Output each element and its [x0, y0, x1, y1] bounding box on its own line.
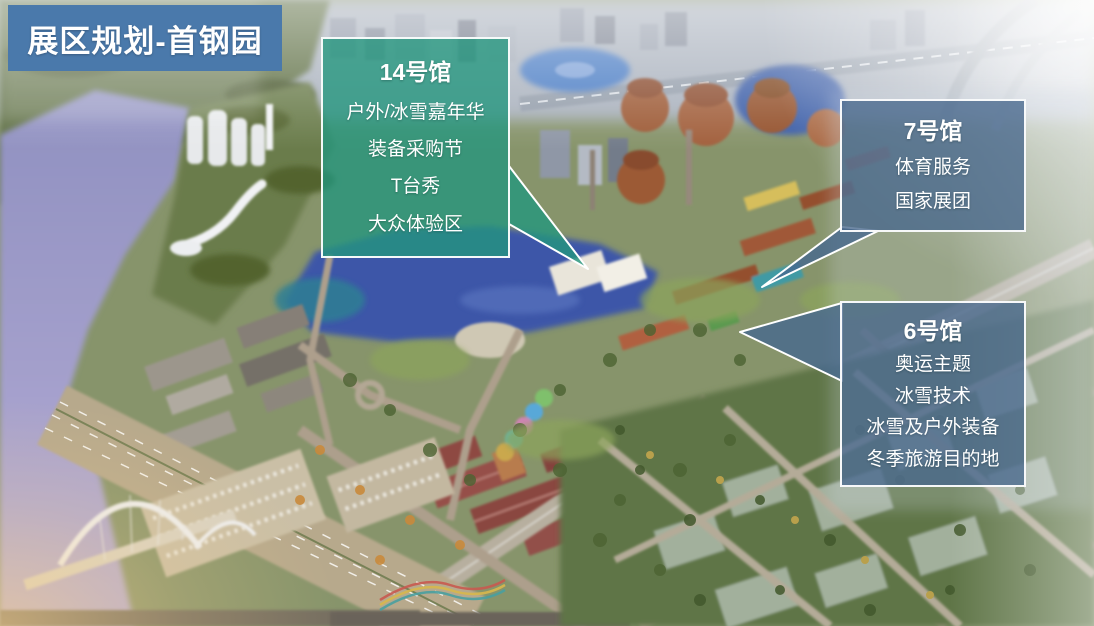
page-title: 展区规划-首钢园	[8, 5, 282, 71]
slide: 展区规划-首钢园 14号馆 户外/冰雪嘉年华 装备采购节 T台秀 大众体验区 7…	[0, 0, 1094, 626]
callout-hall-7-title: 7号馆	[904, 120, 963, 143]
callout-hall-6-item: 冰雪技术	[895, 387, 971, 406]
callout-hall-14-item: T台秀	[391, 177, 441, 196]
callout-hall-7-item: 体育服务	[895, 158, 971, 177]
callout-hall-14-item: 装备采购节	[368, 140, 463, 159]
callout-hall-14-title: 14号馆	[380, 61, 452, 84]
callout-hall-6-item: 冬季旅游目的地	[866, 450, 999, 469]
callout-hall-7: 7号馆 体育服务 国家展团	[840, 99, 1026, 232]
callout-hall-6-item: 奥运主题	[895, 355, 971, 374]
page-title-text: 展区规划-首钢园	[27, 16, 262, 61]
pointer-hall-14	[509, 166, 588, 269]
callout-hall-14-item: 户外/冰雪嘉年华	[346, 103, 484, 122]
callout-hall-14-item: 大众体验区	[368, 215, 463, 234]
callout-hall-6: 6号馆 奥运主题 冰雪技术 冰雪及户外装备 冬季旅游目的地	[840, 301, 1026, 487]
callout-hall-6-title: 6号馆	[904, 320, 963, 343]
pointer-hall-6	[740, 303, 842, 381]
callout-hall-7-item: 国家展团	[895, 192, 971, 211]
pointer-hall-7	[762, 227, 878, 287]
callout-hall-6-item: 冰雪及户外装备	[866, 418, 999, 437]
callout-hall-14: 14号馆 户外/冰雪嘉年华 装备采购节 T台秀 大众体验区	[321, 37, 510, 258]
